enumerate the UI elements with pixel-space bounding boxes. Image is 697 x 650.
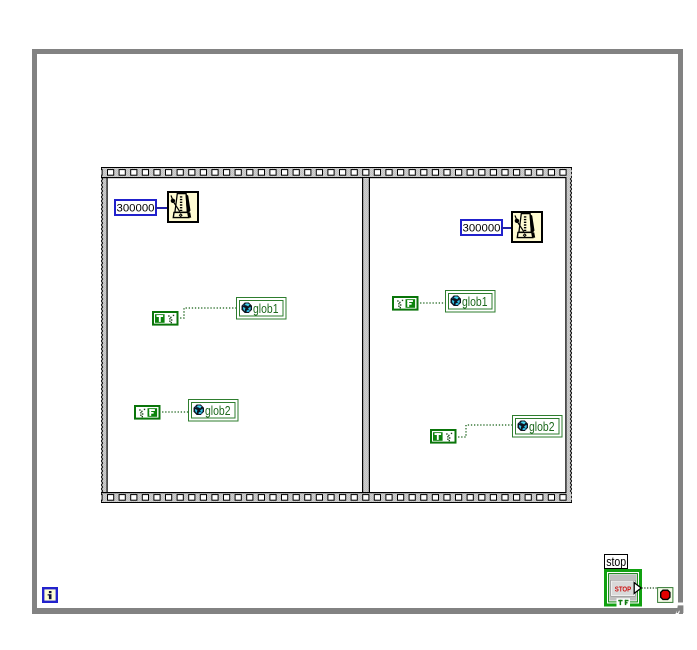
- svg-text:300000: 300000: [117, 203, 155, 215]
- svg-text:glob1: glob1: [253, 302, 279, 316]
- svg-text:glob1: glob1: [462, 295, 488, 309]
- svg-text:glob2: glob2: [205, 404, 231, 418]
- svg-text:glob2: glob2: [529, 420, 555, 434]
- svg-text:STOP: STOP: [615, 585, 632, 594]
- svg-text:300000: 300000: [463, 223, 501, 235]
- svg-text:stop: stop: [606, 555, 626, 569]
